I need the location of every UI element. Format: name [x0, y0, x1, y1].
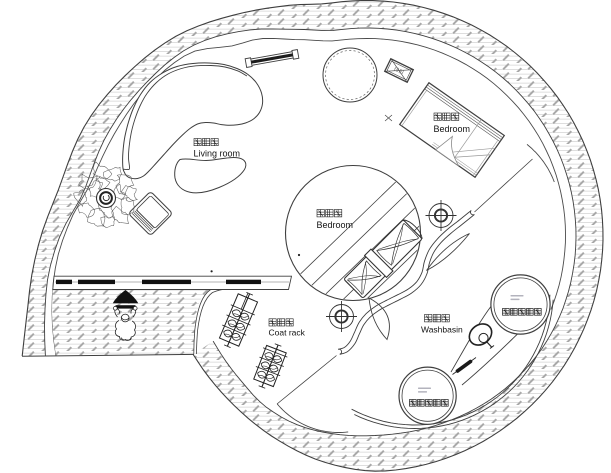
- svg-text:Coat rack: Coat rack: [269, 328, 306, 338]
- svg-text:Bedroom: Bedroom: [317, 220, 354, 230]
- svg-text:Washbasin: Washbasin: [421, 325, 463, 335]
- svg-text:Living room: Living room: [194, 149, 241, 159]
- svg-text:Bedroom: Bedroom: [434, 124, 471, 134]
